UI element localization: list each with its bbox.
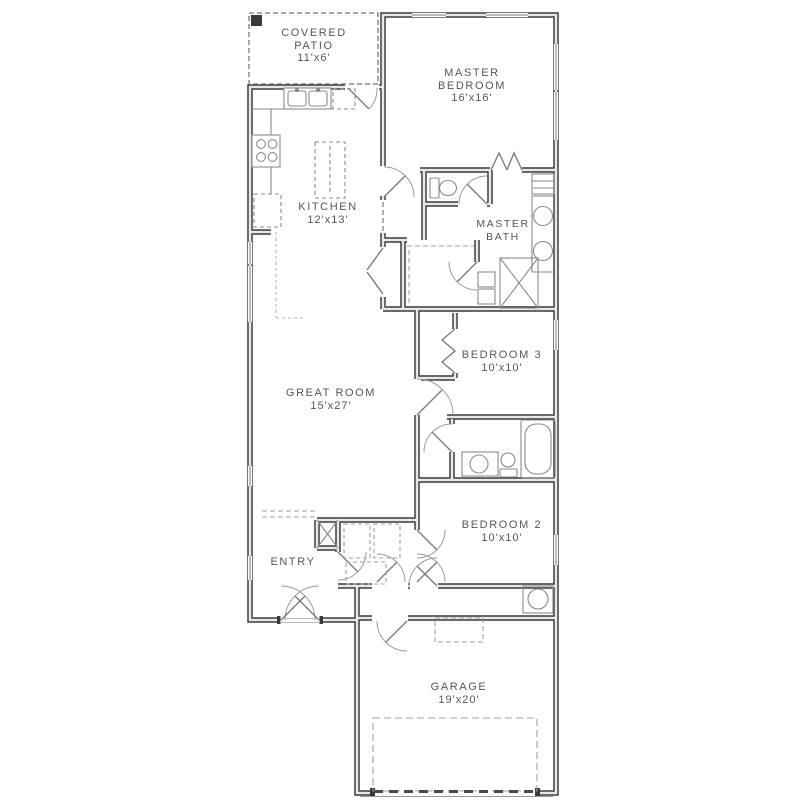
floor-plan-drawing <box>0 0 810 810</box>
kitchen-island <box>315 142 345 198</box>
door-leaf <box>377 562 397 582</box>
patio-door-arc <box>369 88 377 109</box>
toilet-icon <box>500 453 517 477</box>
room-label-covered-patio: COVERED PATIO 11'x6' <box>281 27 347 65</box>
window-icon <box>553 44 560 90</box>
window-icon <box>247 556 254 580</box>
door-leaf <box>457 262 477 282</box>
window-icon <box>412 12 446 19</box>
room-label-kitchen: KITCHEN 12'x13' <box>298 201 357 226</box>
great-room-dashed-outline <box>276 232 304 318</box>
kitchen-sink-icon <box>284 88 331 109</box>
linen-shelves-icon <box>532 174 554 194</box>
garage-slab-dashed <box>373 718 537 791</box>
door-leaf <box>386 621 407 642</box>
entry-closet-x <box>317 520 338 548</box>
patio-post <box>251 15 262 26</box>
room-label-master-bedroom: MASTER BEDROOM 16'x16' <box>438 67 506 105</box>
room-label-bedroom-3: BEDROOM 3 10'x10' <box>462 349 542 374</box>
room-label-master-bath: MASTER BATH <box>476 218 529 243</box>
wall-openings <box>279 83 536 797</box>
closet-cabinet <box>478 272 495 287</box>
bifold-door <box>442 329 455 373</box>
bath2-vanity-icon <box>462 452 498 476</box>
door-leaf <box>384 176 405 197</box>
refrigerator-icon <box>254 194 281 227</box>
door-leaf <box>348 88 369 109</box>
window-icon <box>247 242 254 264</box>
window-icon <box>553 320 560 350</box>
shower-icon <box>500 258 538 308</box>
floor-plan: COVERED PATIO 11'x6' MASTER BEDROOM 16'x… <box>0 0 810 810</box>
room-label-great-room: GREAT ROOM 15'x27' <box>286 387 376 412</box>
closet-cabinet <box>478 289 495 304</box>
doors-layer <box>277 88 540 797</box>
room-label-garage: GARAGE 19'x20' <box>431 681 488 706</box>
bathtub-icon <box>521 420 555 478</box>
garage-storage-dashed <box>435 618 483 642</box>
laundry-appliances-dashed <box>344 524 400 584</box>
toilet-icon <box>430 178 457 198</box>
window-icon <box>553 92 560 140</box>
fixtures-layer <box>252 88 555 797</box>
door-leaf <box>467 184 487 204</box>
stove-icon <box>252 135 280 167</box>
window-icon <box>247 266 254 322</box>
double-door-leaves <box>491 153 522 170</box>
water-heater-icon <box>523 586 553 613</box>
room-label-entry: ENTRY <box>270 556 315 569</box>
door-jambs <box>277 616 540 797</box>
room-label-bedroom-2: BEDROOM 2 10'x10' <box>462 519 542 544</box>
window-icon <box>553 535 560 565</box>
window-icon <box>486 12 528 19</box>
double-vanity-icon <box>532 196 554 272</box>
entry-cased-opening-dashed <box>262 511 317 517</box>
window-icon <box>247 466 254 486</box>
